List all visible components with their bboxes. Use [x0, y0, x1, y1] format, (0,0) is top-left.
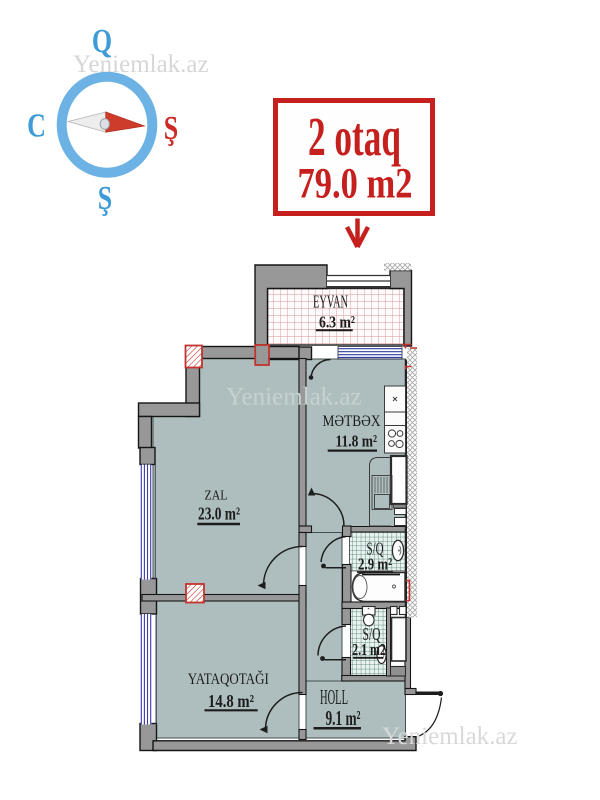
svg-text:C: C [27, 107, 46, 144]
svg-text:Ş: Ş [164, 110, 178, 147]
svg-text:Yeniemlak.az: Yeniemlak.az [73, 51, 209, 78]
svg-text:79.0 m2: 79.0 m2 [298, 159, 413, 207]
svg-text:Yeniemlak.az: Yeniemlak.az [226, 384, 362, 411]
svg-text:2 otaq: 2 otaq [308, 106, 401, 167]
svg-text:YATAQOTAĞI: YATAQOTAĞI [188, 669, 269, 687]
svg-text:Ş: Ş [98, 180, 112, 217]
svg-text:11.8 m²: 11.8 m² [336, 433, 378, 451]
svg-text:EYVAN: EYVAN [313, 293, 348, 312]
svg-text:ZAL: ZAL [205, 487, 228, 503]
svg-text:2.1 m2: 2.1 m2 [352, 642, 386, 660]
svg-text:HOLL: HOLL [320, 686, 348, 708]
svg-text:9.1 m²: 9.1 m² [326, 707, 361, 729]
svg-text:14.8 m²: 14.8 m² [208, 692, 254, 711]
svg-text:Yeniemlak.az: Yeniemlak.az [382, 723, 518, 750]
svg-text:MƏTBƏX: MƏTBƏX [323, 413, 382, 431]
svg-text:23.0 m²: 23.0 m² [198, 505, 240, 524]
